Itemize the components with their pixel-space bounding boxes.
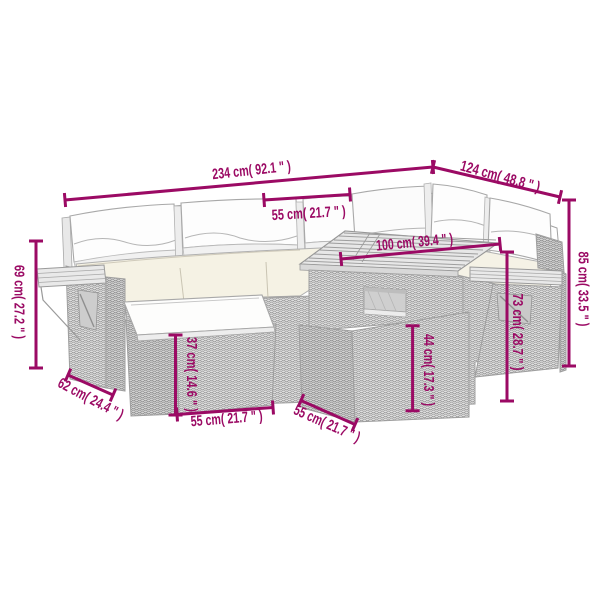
svg-text:37 cm( 14.6 " ): 37 cm( 14.6 " )	[183, 337, 200, 412]
svg-text:69 cm( 27.2 " ): 69 cm( 27.2 " )	[11, 265, 28, 339]
svg-text:44 cm( 17.3 " ): 44 cm( 17.3 " )	[420, 334, 437, 406]
svg-text:85 cm( 33.5 " ): 85 cm( 33.5 " )	[575, 252, 592, 327]
svg-text:73 cm( 28.7 " ): 73 cm( 28.7 " )	[509, 294, 526, 371]
